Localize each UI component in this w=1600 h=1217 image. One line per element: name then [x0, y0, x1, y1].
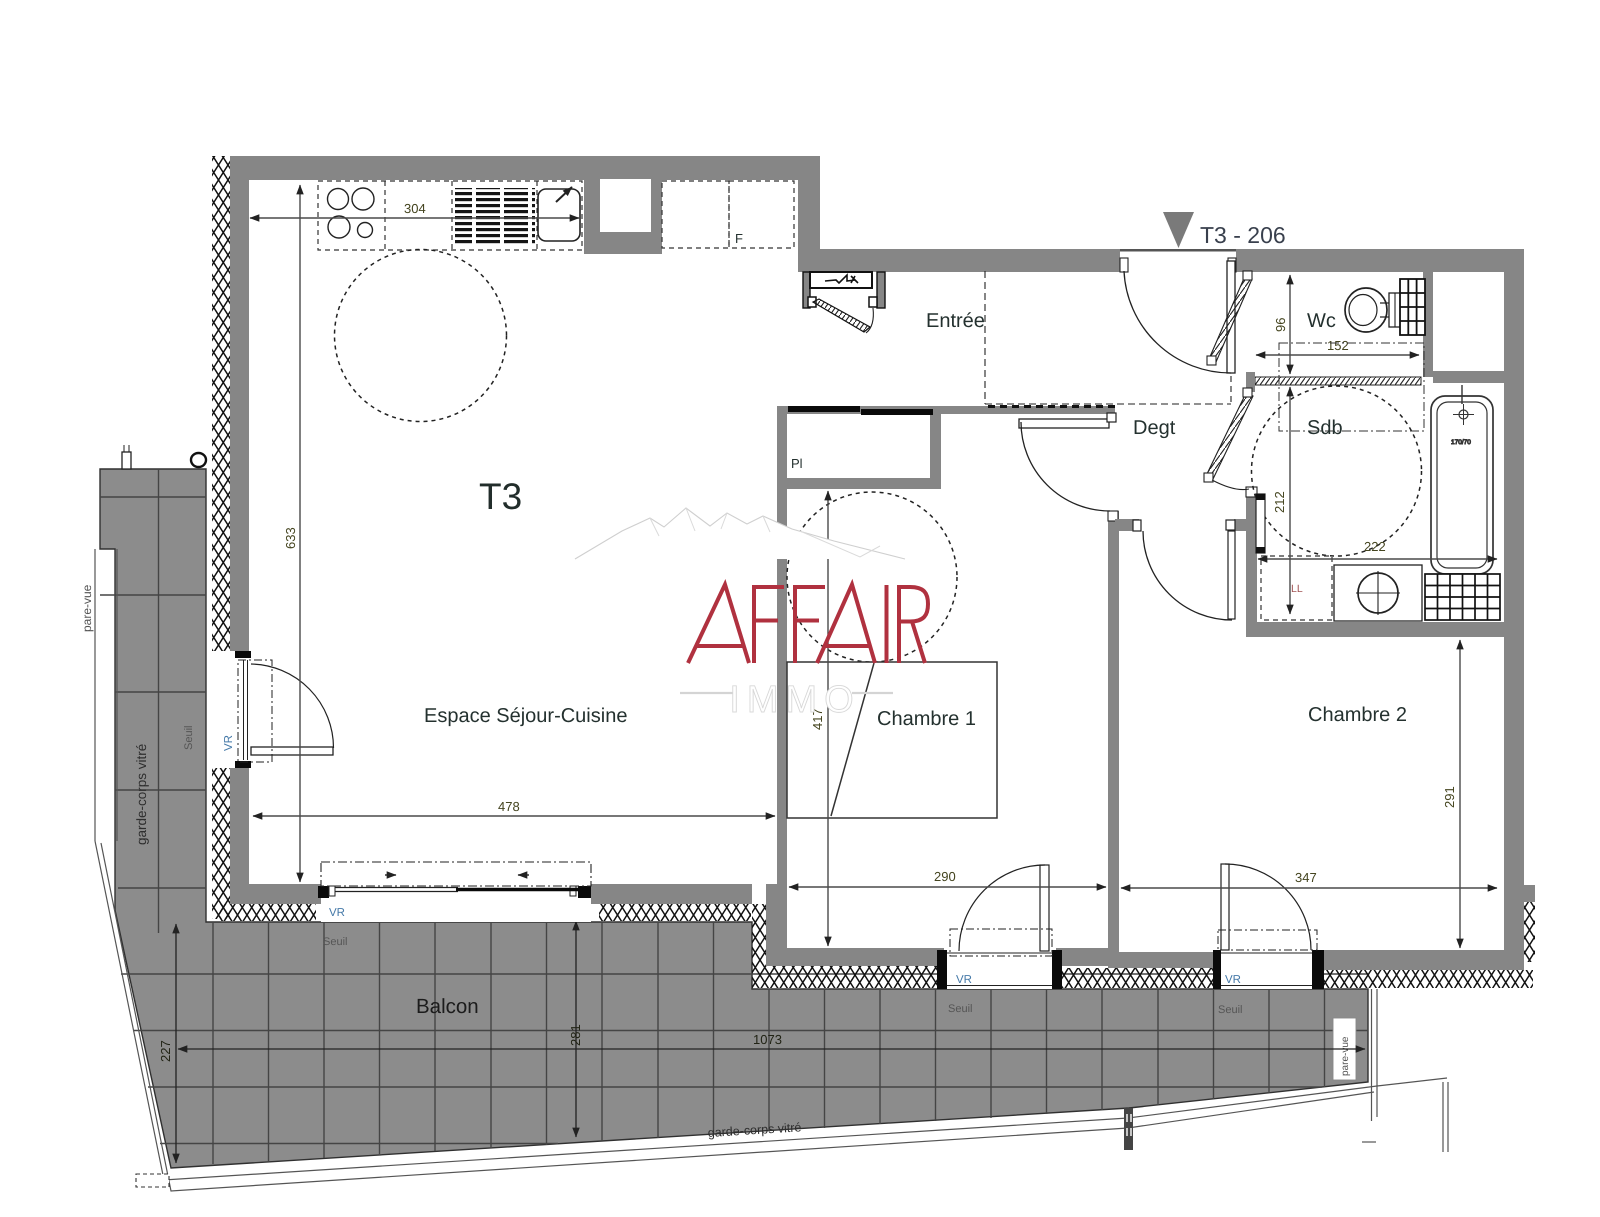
svg-text:Sdb: Sdb: [1307, 417, 1343, 439]
svg-text:F: F: [735, 231, 743, 246]
svg-text:222: 222: [1364, 539, 1386, 554]
svg-text:Seuil: Seuil: [1218, 1004, 1242, 1016]
svg-text:VR: VR: [1225, 974, 1241, 986]
svg-text:Balcon: Balcon: [416, 995, 479, 1018]
svg-text:Degt: Degt: [1133, 417, 1176, 439]
svg-text:Seuil: Seuil: [948, 1003, 972, 1015]
svg-text:VR: VR: [329, 907, 345, 919]
svg-text:Chambre 1: Chambre 1: [877, 708, 976, 730]
svg-text:pare-vue: pare-vue: [80, 584, 94, 632]
svg-text:pare-vue: pare-vue: [1340, 1036, 1351, 1076]
svg-text:Wc: Wc: [1307, 310, 1336, 332]
svg-text:291: 291: [1442, 786, 1457, 808]
svg-text:281: 281: [568, 1024, 583, 1046]
svg-text:VR: VR: [956, 974, 972, 986]
svg-text:1073: 1073: [753, 1032, 782, 1047]
svg-text:170/70: 170/70: [1451, 439, 1471, 446]
svg-text:290: 290: [934, 869, 956, 884]
svg-text:Chambre 2: Chambre 2: [1308, 704, 1407, 726]
svg-text:T3 - 206: T3 - 206: [1200, 222, 1286, 248]
svg-text:garde-corps vitré: garde-corps vitré: [134, 744, 149, 845]
svg-text:633: 633: [283, 527, 298, 549]
svg-text:152: 152: [1327, 338, 1349, 353]
svg-text:LL: LL: [1291, 583, 1303, 595]
svg-text:478: 478: [498, 799, 520, 814]
svg-text:T3: T3: [479, 476, 522, 517]
svg-text:Espace Séjour-Cuisine: Espace Séjour-Cuisine: [424, 705, 627, 727]
svg-text:Entrée: Entrée: [926, 310, 985, 332]
svg-text:212: 212: [1272, 491, 1287, 513]
svg-text:227: 227: [158, 1040, 173, 1062]
svg-text:IMMO: IMMO: [729, 679, 860, 721]
svg-text:Seuil: Seuil: [183, 726, 195, 750]
svg-text:Seuil: Seuil: [323, 936, 347, 948]
svg-text:347: 347: [1295, 870, 1317, 885]
svg-text:Pl: Pl: [791, 456, 803, 471]
svg-text:304: 304: [404, 201, 426, 216]
svg-text:96: 96: [1273, 318, 1288, 332]
svg-text:VR: VR: [223, 735, 235, 751]
